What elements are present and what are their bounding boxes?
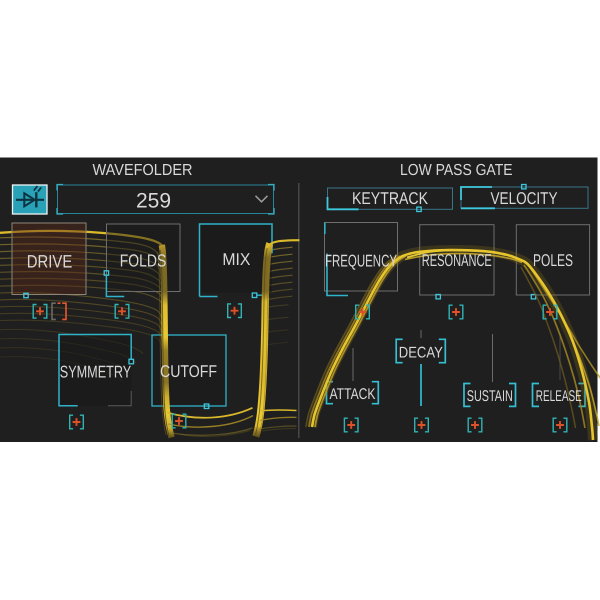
svg-text:VELOCITY: VELOCITY <box>491 189 558 208</box>
svg-text:RESONANCE: RESONANCE <box>422 251 492 270</box>
svg-text:POLES: POLES <box>533 251 573 270</box>
svg-text:SYMMETRY: SYMMETRY <box>60 362 132 381</box>
svg-text:SUSTAIN: SUSTAIN <box>467 388 513 405</box>
svg-text:WAVEFOLDER: WAVEFOLDER <box>93 162 193 179</box>
svg-text:DECAY: DECAY <box>399 345 443 362</box>
svg-text:RELEASE: RELEASE <box>536 388 582 405</box>
svg-text:FOLDS: FOLDS <box>120 251 167 271</box>
svg-text:ATTACK: ATTACK <box>330 386 377 403</box>
svg-text:KEYTRACK: KEYTRACK <box>352 189 429 208</box>
svg-text:LOW PASS GATE: LOW PASS GATE <box>400 162 513 179</box>
svg-text:MIX: MIX <box>222 250 250 269</box>
svg-text:FREQUENCY: FREQUENCY <box>325 251 397 270</box>
svg-text:CUTOFF: CUTOFF <box>160 362 217 381</box>
svg-text:259: 259 <box>136 190 171 213</box>
svg-text:DRIVE: DRIVE <box>27 252 73 272</box>
